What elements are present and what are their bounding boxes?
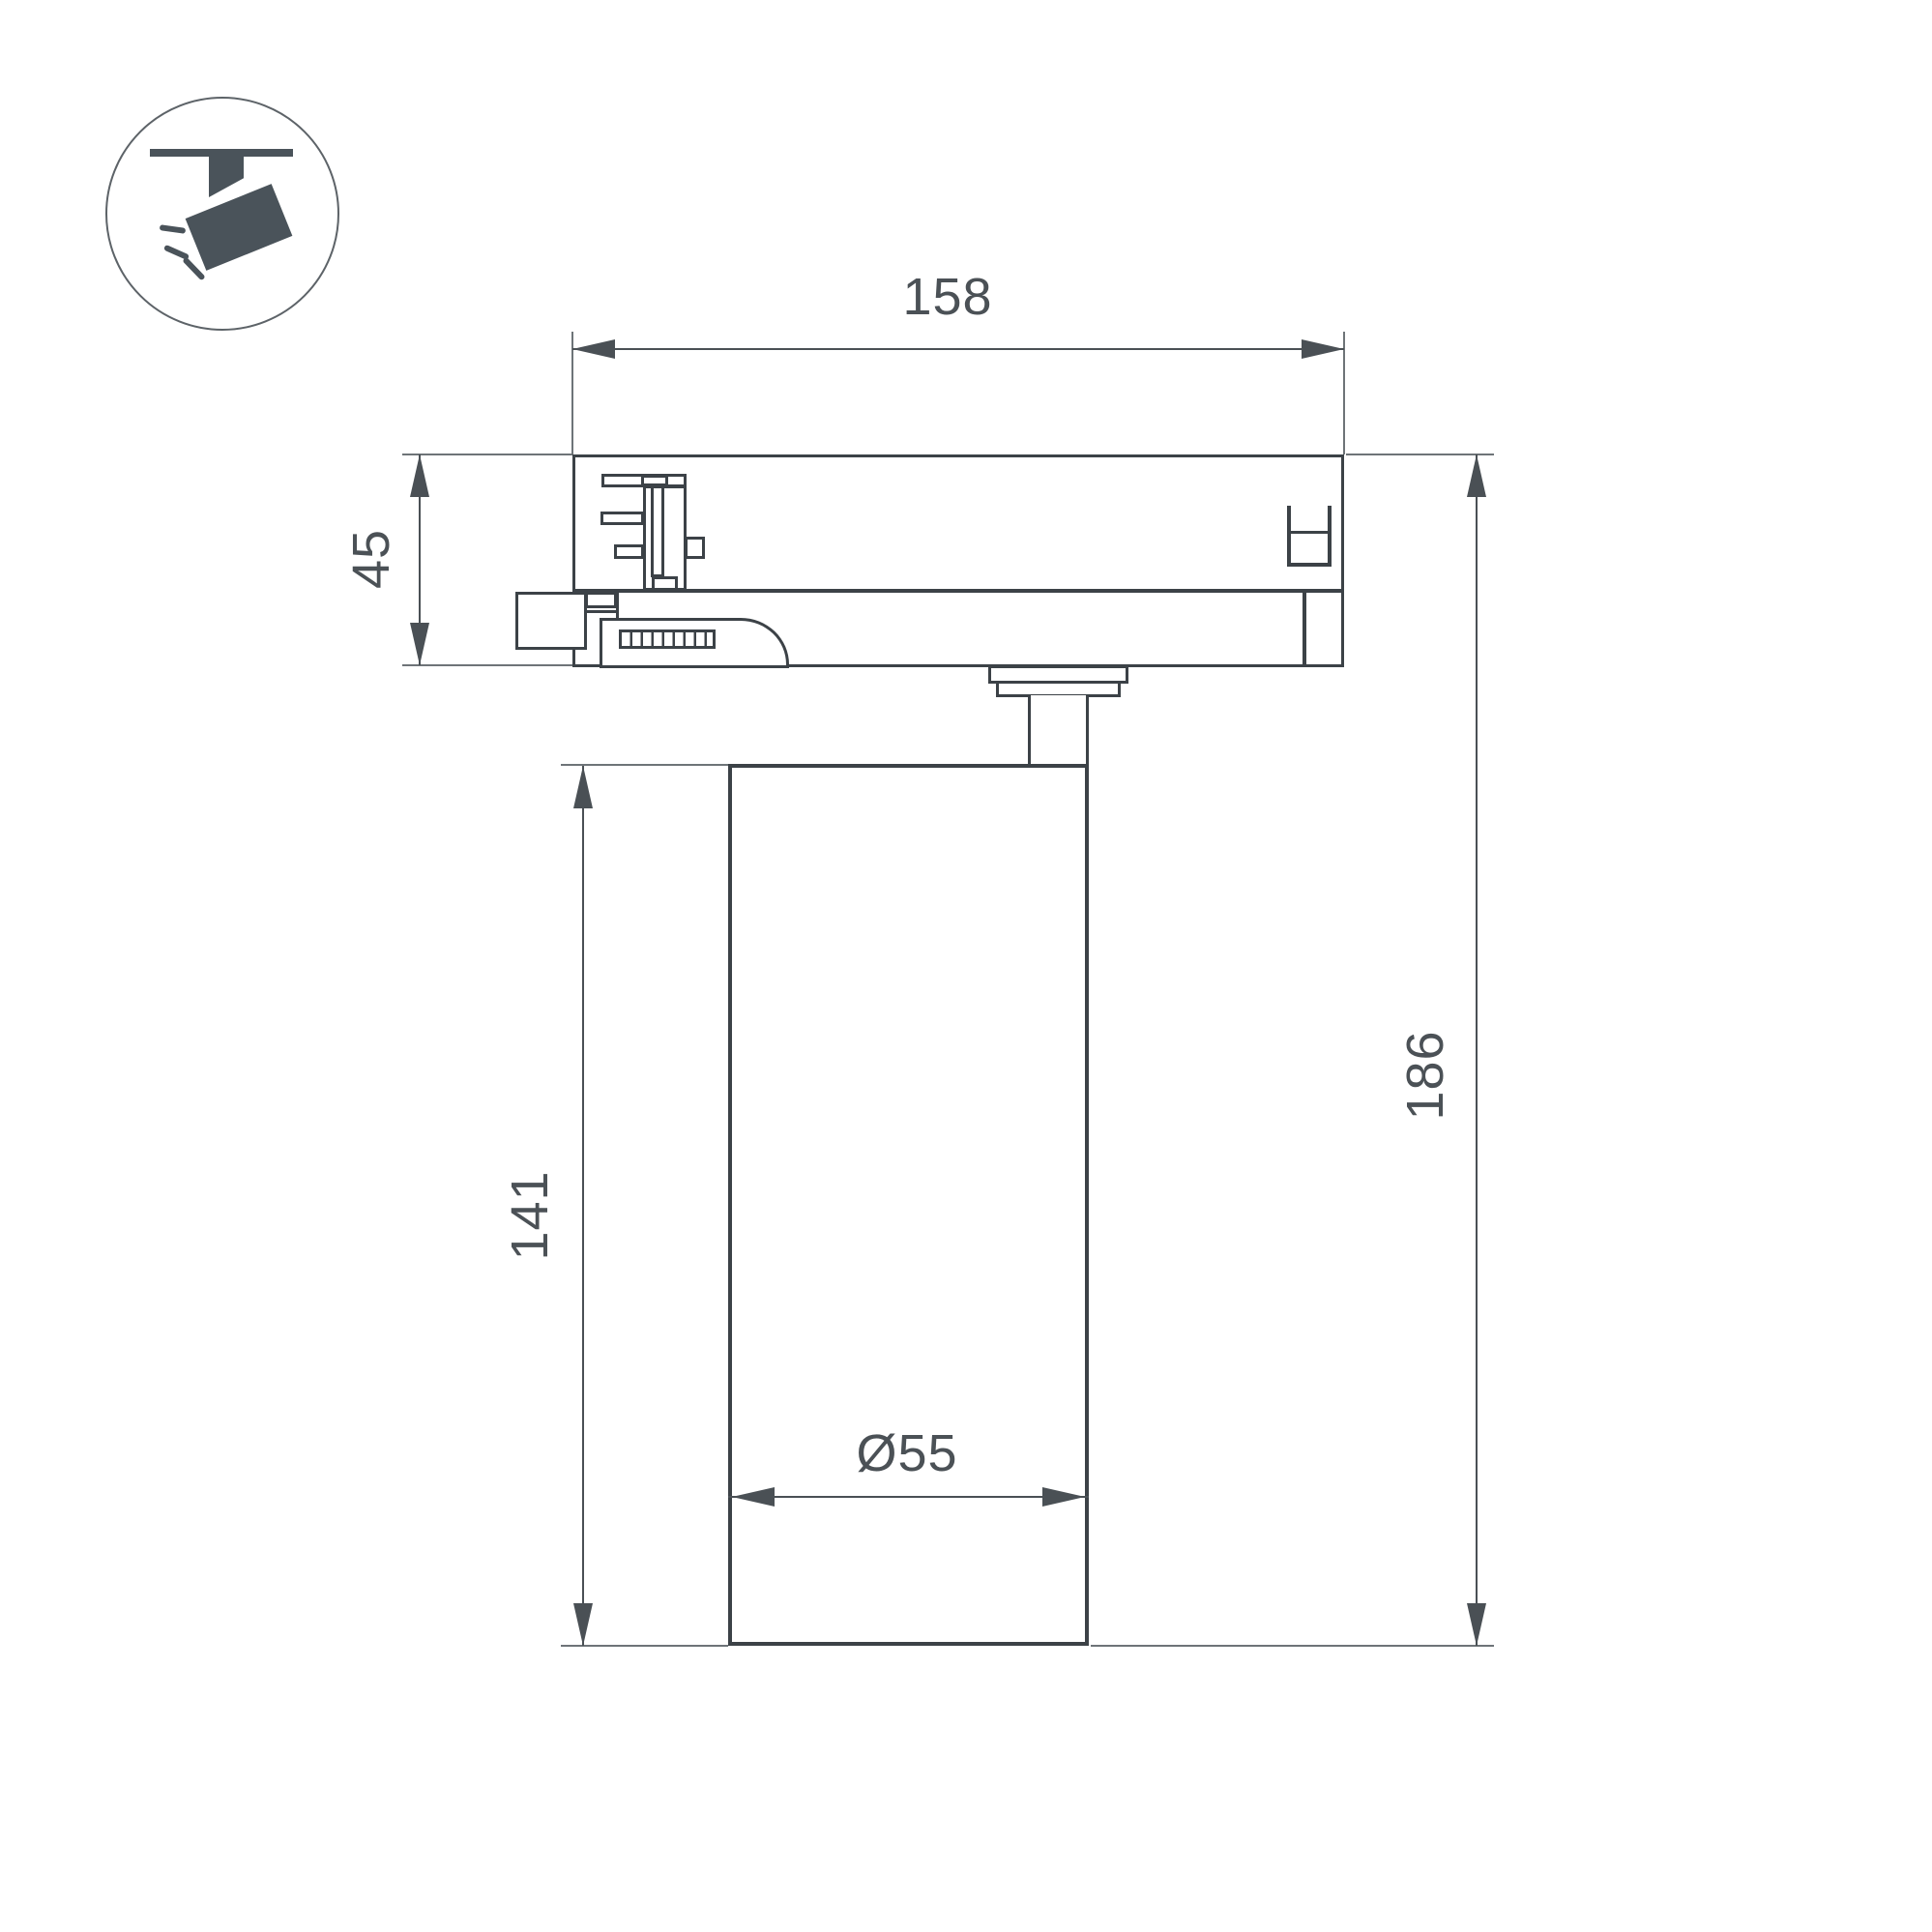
ext-line — [571, 332, 573, 454]
contact-finger-bottom — [614, 544, 644, 559]
ext-line — [561, 1645, 728, 1647]
arrowhead-down-icon — [410, 623, 429, 665]
dim-line — [728, 1496, 1089, 1498]
dim-label-track-width: 158 — [902, 267, 992, 327]
latch-small-box — [585, 592, 617, 608]
arrowhead-down-icon — [573, 1603, 593, 1646]
dim-line — [582, 766, 584, 1646]
arrowhead-right-icon — [1302, 339, 1344, 359]
latch-step-line — [616, 591, 619, 620]
contact-finger-middle — [600, 512, 644, 525]
dimension-drawing-canvas: 158 45 141 186 Ø55 — [0, 0, 1932, 1932]
ext-line — [1343, 332, 1345, 454]
adapter-right-divider — [1303, 591, 1306, 667]
contact-side-tab — [685, 537, 705, 559]
dim-line — [572, 348, 1344, 350]
contact-mast — [643, 485, 687, 591]
stem — [1028, 695, 1089, 768]
arrowhead-up-icon — [573, 766, 593, 808]
dim-label-body-height: 141 — [500, 1170, 560, 1260]
lock-clip — [1287, 506, 1332, 567]
latch-block — [515, 592, 587, 650]
lock-clip-crossbar — [1291, 531, 1328, 534]
contact-pin-cap — [641, 475, 668, 486]
adapter-mid-line — [572, 589, 1344, 593]
lamp-body-outline — [728, 764, 1089, 1646]
dim-label-adapter-height: 45 — [341, 529, 401, 589]
arrowhead-down-icon — [1467, 1603, 1486, 1646]
arrowhead-left-icon — [572, 339, 615, 359]
dim-label-body-diameter: Ø55 — [856, 1423, 957, 1483]
ext-line — [402, 664, 572, 666]
dim-label-total-height: 186 — [1395, 1030, 1455, 1120]
ext-line — [1346, 454, 1494, 455]
ext-line — [561, 764, 728, 766]
dim-line — [1476, 454, 1478, 1646]
arrowhead-up-icon — [410, 454, 429, 497]
ext-line — [1091, 1645, 1494, 1647]
latch-small-bar — [585, 610, 617, 613]
contact-pin-foot — [652, 576, 678, 591]
ext-line — [402, 454, 572, 455]
arrowhead-up-icon — [1467, 454, 1486, 497]
slider-ribbed-grip — [619, 629, 716, 649]
contact-pin — [651, 485, 664, 577]
